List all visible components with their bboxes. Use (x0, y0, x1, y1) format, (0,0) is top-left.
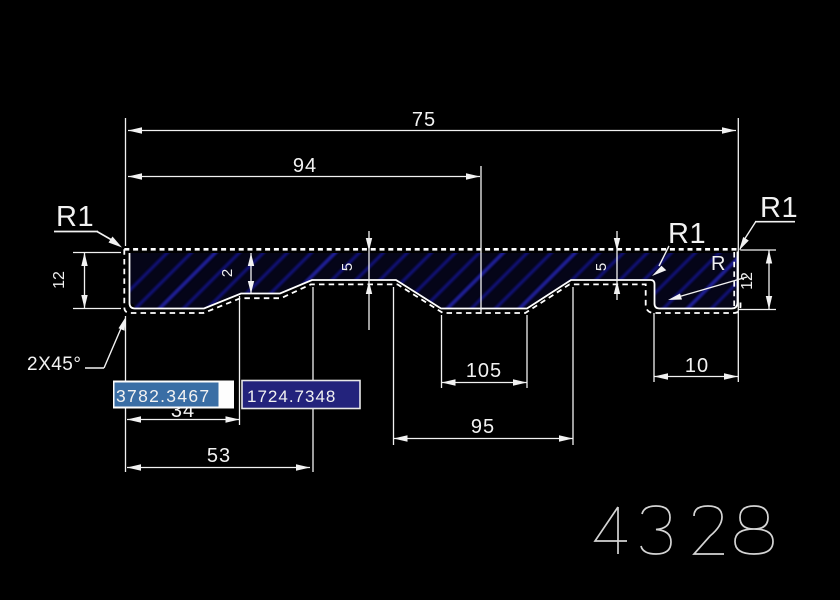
svg-text:R1: R1 (668, 218, 706, 250)
svg-text:94: 94 (293, 155, 317, 177)
svg-text:R1: R1 (56, 201, 94, 233)
svg-text:2: 2 (219, 269, 236, 277)
svg-text:1724.7348: 1724.7348 (247, 387, 336, 406)
svg-text:95: 95 (471, 416, 495, 438)
svg-text:R1: R1 (760, 192, 798, 224)
svg-text:2X45°: 2X45° (27, 354, 81, 375)
svg-text:12: 12 (739, 272, 756, 290)
svg-text:5: 5 (593, 263, 610, 271)
svg-text:5: 5 (339, 263, 356, 271)
svg-text:R: R (711, 253, 725, 275)
svg-text:53: 53 (207, 445, 231, 467)
svg-text:105: 105 (466, 360, 502, 382)
svg-text:10: 10 (685, 355, 709, 377)
svg-text:3782.3467: 3782.3467 (116, 386, 210, 406)
svg-text:75: 75 (412, 109, 436, 131)
svg-text:12: 12 (51, 271, 68, 289)
